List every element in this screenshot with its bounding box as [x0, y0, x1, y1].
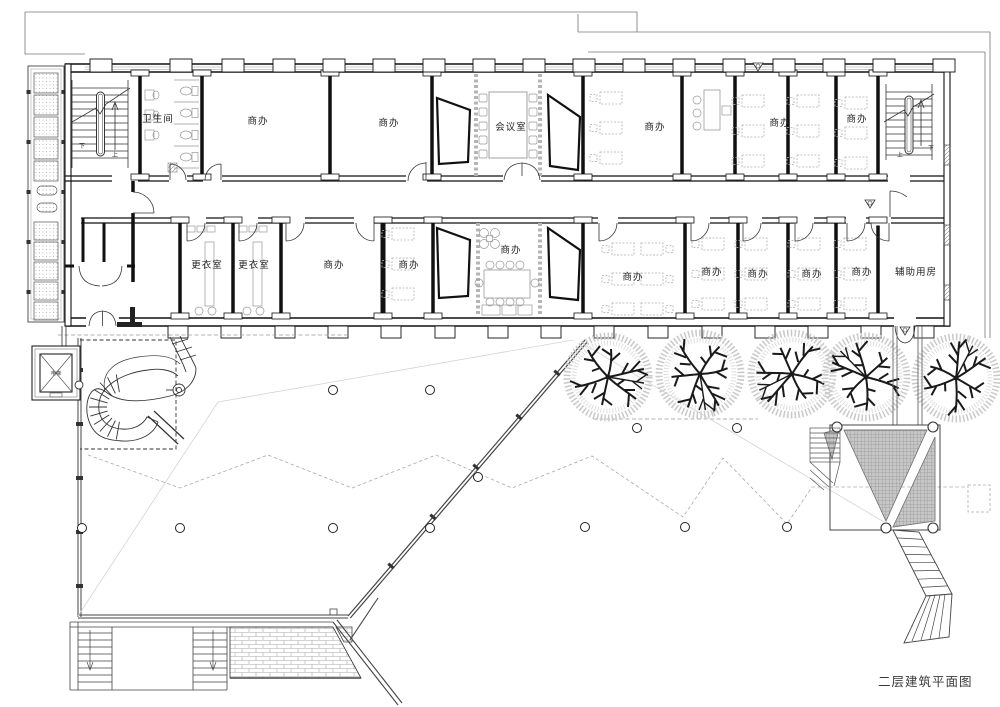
column: [681, 523, 690, 532]
l-stair: [893, 530, 952, 643]
desk: [641, 243, 663, 255]
column-cap: [869, 313, 887, 319]
rail-joint: [76, 476, 83, 480]
column-cap: [779, 217, 797, 223]
desk: [745, 298, 767, 310]
column-cap: [827, 174, 845, 180]
toilet-tank: [192, 87, 198, 96]
room-label: 商办: [622, 271, 643, 283]
chair: [529, 150, 537, 158]
desk: [612, 303, 634, 315]
room-label: 商办: [644, 121, 665, 133]
tick: [27, 140, 31, 144]
tread: [116, 422, 119, 440]
chair: [479, 150, 487, 158]
column-cap: [676, 217, 694, 223]
column-cap: [424, 217, 442, 223]
chair: [590, 125, 597, 132]
column-cap: [574, 217, 592, 223]
tread: [905, 554, 931, 555]
room-label: 商办: [701, 266, 722, 278]
spiral-staircase: [87, 336, 196, 444]
tick: [27, 240, 31, 244]
stair-direction-label: 下: [928, 145, 934, 152]
chair: [516, 261, 524, 269]
facade-column: [541, 326, 561, 338]
column-cap: [224, 313, 242, 319]
planter-box: [34, 73, 58, 93]
column-cap: [729, 313, 747, 319]
chair: [506, 261, 514, 269]
column-cap: [321, 174, 339, 180]
desk: [797, 95, 819, 107]
tread: [108, 421, 116, 437]
chair: [479, 136, 487, 144]
column: [733, 424, 742, 433]
column-cap: [574, 313, 592, 319]
desk: [641, 273, 663, 285]
chair: [692, 301, 699, 308]
column-cap: [224, 217, 242, 223]
column-cap: [193, 70, 211, 76]
east-window: [944, 285, 950, 300]
chair: [590, 95, 597, 102]
desk: [745, 238, 767, 250]
facade-column: [933, 59, 955, 72]
planter-box: [34, 242, 58, 260]
toilet: [181, 87, 192, 95]
desk: [845, 127, 867, 139]
room-label: 商办: [247, 115, 268, 127]
chair: [531, 279, 539, 287]
column-cap: [272, 217, 290, 223]
column-cap: [869, 174, 887, 180]
chair: [496, 261, 504, 269]
facade-column: [170, 59, 192, 72]
rail-joint: [76, 422, 83, 426]
column-cap: [374, 313, 392, 319]
desk: [392, 228, 414, 240]
desk: [742, 125, 764, 137]
desk: [742, 155, 764, 167]
elevator: [32, 326, 83, 400]
room-label: 商办: [851, 266, 872, 278]
facade-column: [273, 59, 295, 72]
door-swing: [599, 223, 617, 241]
glass-rail-diagonal: [348, 340, 587, 618]
planter-box: [34, 161, 58, 181]
facade-column: [435, 326, 455, 338]
column-cap: [779, 174, 797, 180]
west-wing: [65, 181, 142, 327]
column-cap: [676, 313, 694, 319]
facade-column: [648, 326, 668, 338]
toilet: [181, 153, 192, 161]
chair: [692, 271, 699, 278]
trees: [567, 317, 1000, 435]
facade-column: [673, 59, 695, 72]
desk: [742, 95, 764, 107]
room-label: 更衣室: [191, 259, 223, 271]
chair: [602, 276, 609, 283]
column-cap: [272, 313, 290, 319]
facade-column: [488, 326, 508, 338]
tick: [27, 90, 31, 94]
chair: [590, 155, 597, 162]
tick: [27, 290, 31, 294]
facade-column: [221, 326, 241, 338]
skylight-hatch: [824, 429, 935, 527]
desk: [845, 157, 867, 169]
facade-column: [328, 326, 348, 338]
planter-box: [34, 302, 58, 320]
facade-column: [473, 59, 495, 72]
planter-box: [34, 262, 58, 280]
chair: [602, 246, 609, 253]
planter-box: [34, 282, 58, 300]
chair: [529, 108, 537, 116]
desk: [600, 122, 622, 134]
facade-column: [523, 59, 545, 72]
column-cap: [131, 70, 149, 76]
facade-column: [222, 59, 244, 72]
door-gap: [846, 216, 866, 226]
column-cap: [193, 174, 211, 180]
door-gap: [888, 174, 910, 184]
facade-column: [723, 59, 745, 72]
facade-column: [623, 59, 645, 72]
facade-column: [168, 326, 188, 338]
planter-box: [34, 117, 58, 137]
facade-column: [808, 326, 828, 338]
column-cap: [574, 174, 592, 180]
column-cap: [827, 313, 845, 319]
column: [78, 524, 87, 533]
facade-column: [914, 326, 934, 338]
toilet: [181, 131, 192, 139]
room-label: 会议室: [495, 121, 527, 133]
tree-icon: [567, 336, 649, 418]
facade-column: [873, 59, 895, 72]
column-cap: [374, 217, 392, 223]
wc-fixtures: [145, 80, 199, 172]
office-table: [693, 90, 731, 130]
chair: [602, 306, 609, 313]
desk: [702, 298, 724, 310]
tick: [27, 190, 31, 194]
column: [329, 524, 338, 533]
desk: [845, 97, 867, 109]
column-cap: [729, 217, 747, 223]
door-gap: [894, 316, 916, 328]
planter-box: [34, 95, 58, 115]
facade-column: [773, 59, 795, 72]
stair-direction-label: 上: [897, 151, 903, 159]
planter-strip: [27, 66, 66, 322]
column: [329, 386, 338, 395]
floor-plan-drawing: 卫生间商办商办会议室商办商办商办更衣室更衣室商办商办商办商办商办商办商办商办辅助…: [0, 0, 1000, 707]
chair: [529, 122, 537, 130]
room-label: 商办: [398, 259, 419, 271]
facade-column: [373, 59, 395, 72]
drawing-title: 二层建筑平面图: [878, 674, 973, 689]
chair: [666, 306, 673, 313]
door-gap: [354, 216, 374, 226]
room-label: 更衣室: [238, 259, 270, 271]
column-cap: [131, 174, 149, 180]
planter-box: [34, 139, 58, 159]
door-gap: [169, 174, 187, 184]
tread: [914, 570, 940, 571]
chair: [666, 246, 673, 253]
planter-oval: [37, 186, 57, 195]
desk: [392, 288, 414, 300]
stair-direction-label: 上: [112, 151, 118, 159]
path-dashed-zigzag: [88, 455, 966, 524]
planter-box: [34, 222, 58, 240]
column-cap: [726, 174, 744, 180]
chair: [479, 108, 487, 116]
facade-column: [381, 326, 401, 338]
column: [633, 424, 642, 433]
facade-column: [90, 59, 112, 72]
room-label: 商办: [323, 259, 344, 271]
tree-icon: [904, 326, 1000, 429]
chair: [692, 241, 699, 248]
facade-column: [755, 326, 775, 338]
chair: [529, 94, 537, 102]
tread: [116, 375, 119, 393]
toilet: [181, 109, 192, 117]
chair: [479, 122, 487, 130]
column: [426, 524, 435, 533]
column-cap: [424, 313, 442, 319]
central-room-furniture: [475, 229, 539, 316]
desk: [797, 125, 819, 137]
toilet-tank: [192, 153, 198, 162]
level-markers: [753, 63, 910, 335]
room-label: 辅助用房: [895, 266, 937, 278]
east-window: [944, 145, 950, 165]
column-cap: [827, 217, 845, 223]
desk: [612, 243, 634, 255]
chair: [486, 261, 494, 269]
facade-column: [423, 59, 445, 72]
desk: [600, 152, 622, 164]
room-label: 商办: [378, 117, 399, 129]
tree-icon: [735, 317, 850, 432]
facade-column: [573, 59, 595, 72]
entry-steps-southwest: [70, 598, 402, 705]
planter-oval: [37, 203, 57, 212]
room-label: 卫生间: [142, 113, 174, 125]
terrace: [58, 317, 1000, 618]
stair-direction-label: 电梯: [51, 370, 61, 377]
floor-plan: 卫生间商办商办会议室商办商办商办更衣室更衣室商办商办商办商办商办商办商办商办辅助…: [0, 0, 1000, 707]
rail-joint: [76, 584, 83, 588]
chair: [479, 94, 487, 102]
column: [176, 524, 185, 533]
column-cap: [171, 217, 189, 223]
desk: [844, 298, 866, 310]
east-window: [944, 225, 950, 245]
toilet-tank: [192, 109, 198, 118]
east-staircase: [884, 84, 934, 160]
facade-column: [323, 59, 345, 72]
desk: [600, 92, 622, 104]
column-cap: [171, 313, 189, 319]
west-staircase: [72, 80, 130, 168]
chair: [666, 276, 673, 283]
facade-column: [275, 326, 295, 338]
door-gap: [598, 216, 618, 226]
chair: [529, 136, 537, 144]
desk: [798, 298, 820, 310]
room-label: 商办: [769, 117, 790, 129]
column: [474, 473, 483, 482]
column: [426, 386, 435, 395]
column-cap: [779, 313, 797, 319]
facade-column: [823, 59, 845, 72]
room-label: 商办: [846, 113, 867, 125]
column-cap: [869, 217, 887, 223]
room-label: 商办: [747, 268, 768, 280]
desk: [641, 303, 663, 315]
room-label: 商办: [500, 244, 521, 256]
room-label: 商办: [801, 268, 822, 280]
toilet-tank: [192, 131, 198, 140]
terrace-columns: [78, 386, 792, 533]
column: [581, 523, 590, 532]
desk: [702, 238, 724, 250]
desk: [797, 155, 819, 167]
column-cap: [673, 174, 691, 180]
stair-direction-label: 下: [79, 143, 85, 150]
column: [783, 523, 792, 532]
facade-column: [861, 326, 881, 338]
